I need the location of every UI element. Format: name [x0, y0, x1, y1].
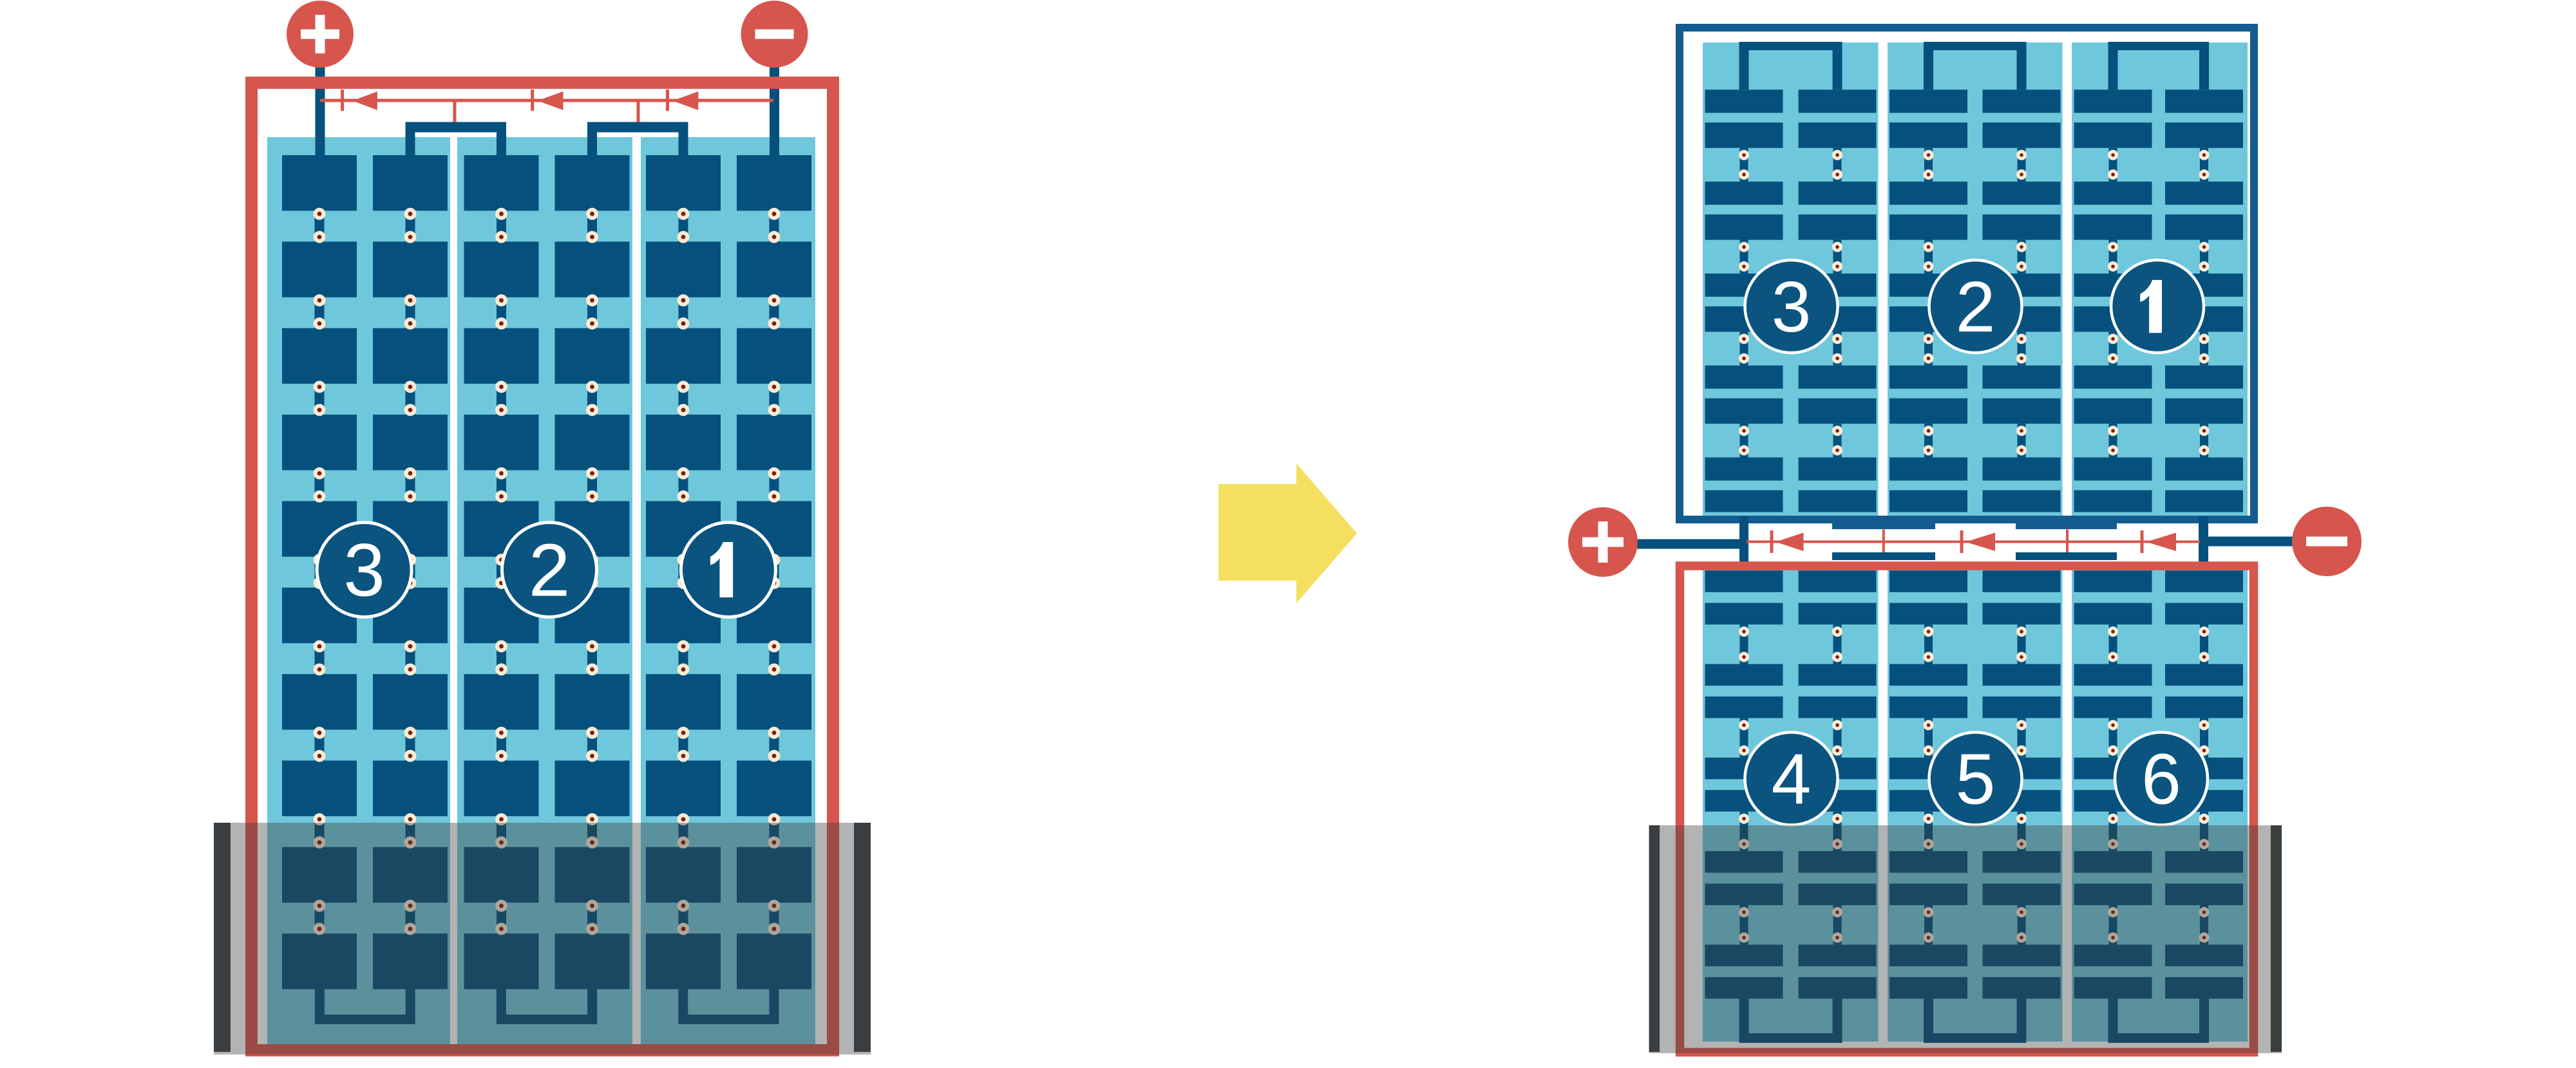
- svg-text:2: 2: [529, 529, 571, 612]
- svg-text:6: 6: [2141, 739, 2181, 819]
- svg-text:3: 3: [1772, 267, 1812, 347]
- svg-text:4: 4: [1772, 739, 1812, 819]
- svg-text:3: 3: [343, 529, 385, 612]
- svg-text:5: 5: [1956, 739, 1996, 819]
- svg-text:2: 2: [1956, 267, 1996, 347]
